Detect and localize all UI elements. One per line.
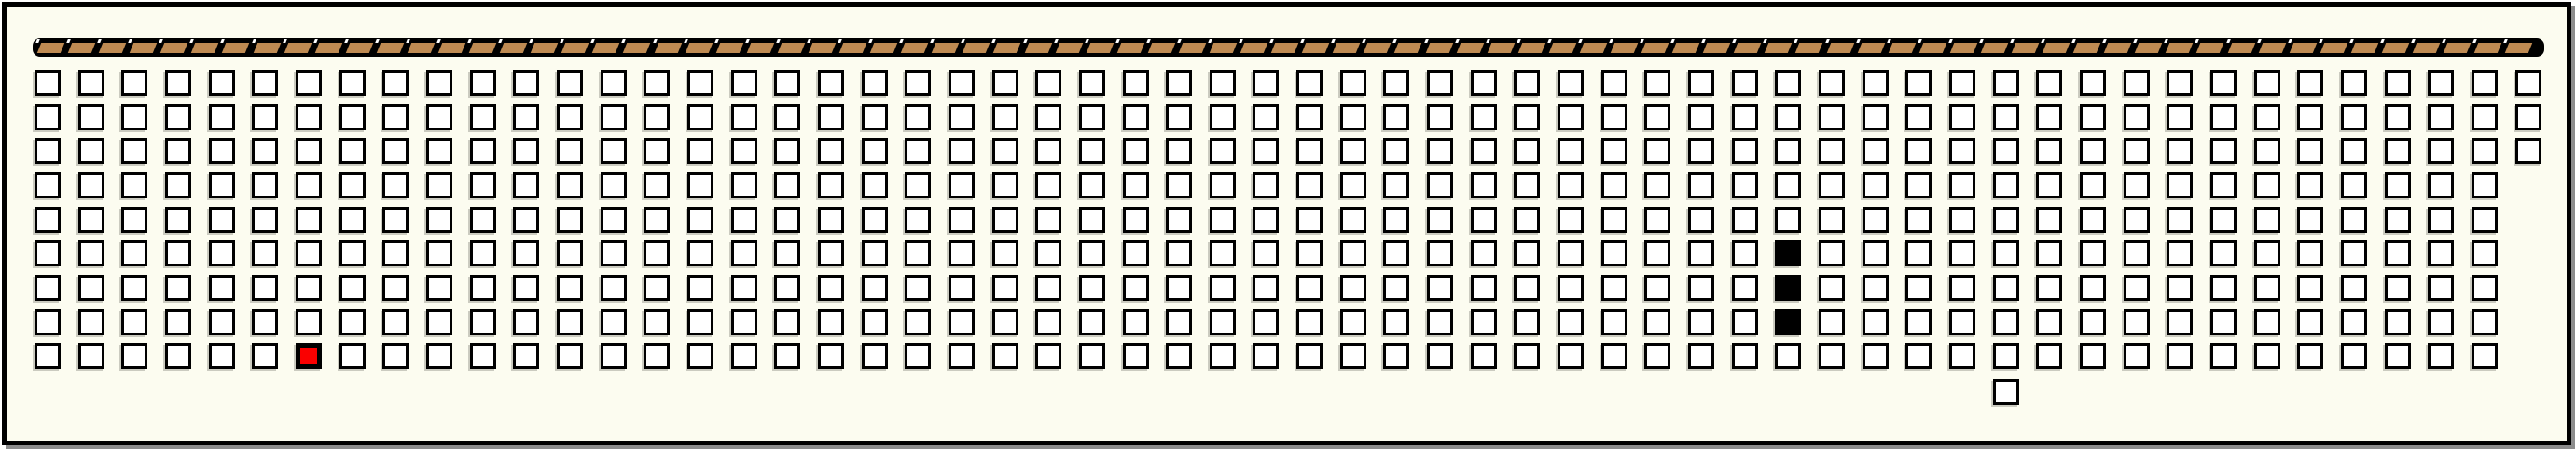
grid-cell[interactable] <box>1471 275 1497 301</box>
grid-cell[interactable] <box>2036 172 2062 198</box>
grid-cell[interactable] <box>1166 104 1192 130</box>
grid-cell[interactable] <box>1688 309 1714 335</box>
grid-cell[interactable] <box>1166 309 1192 335</box>
grid-cell[interactable] <box>687 275 713 301</box>
grid-cell[interactable] <box>2341 138 2367 164</box>
grid-cell[interactable] <box>1427 240 1453 266</box>
grid-cell[interactable] <box>1210 172 1236 198</box>
grid-cell[interactable] <box>35 207 61 233</box>
grid-cell[interactable] <box>2124 70 2150 96</box>
grid-cell[interactable] <box>2297 138 2323 164</box>
grid-cell[interactable] <box>1863 138 1889 164</box>
grid-cell[interactable] <box>818 138 844 164</box>
black-cell[interactable] <box>1775 240 1801 266</box>
grid-cell[interactable] <box>687 70 713 96</box>
grid-cell[interactable] <box>1819 207 1845 233</box>
grid-cell[interactable] <box>78 70 104 96</box>
grid-cell[interactable] <box>1601 240 1627 266</box>
grid-cell[interactable] <box>1123 275 1149 301</box>
grid-cell[interactable] <box>949 240 975 266</box>
grid-cell[interactable] <box>1471 138 1497 164</box>
grid-cell[interactable] <box>1732 70 1758 96</box>
grid-cell[interactable] <box>1253 207 1279 233</box>
grid-cell[interactable] <box>78 104 104 130</box>
grid-cell[interactable] <box>1688 172 1714 198</box>
grid-cell[interactable] <box>1471 104 1497 130</box>
grid-cell[interactable] <box>1993 343 2019 369</box>
grid-cell[interactable] <box>601 172 627 198</box>
grid-cell[interactable] <box>1035 309 1061 335</box>
grid-cell[interactable] <box>1644 309 1670 335</box>
grid-cell[interactable] <box>78 275 104 301</box>
grid-cell[interactable] <box>2080 104 2106 130</box>
grid-cell[interactable] <box>2080 70 2106 96</box>
grid-cell[interactable] <box>1296 138 1323 164</box>
grid-cell[interactable] <box>1383 104 1409 130</box>
grid-cell[interactable] <box>1296 104 1323 130</box>
grid-cell[interactable] <box>2080 138 2106 164</box>
grid-cell[interactable] <box>2254 104 2280 130</box>
grid-cell[interactable] <box>731 275 757 301</box>
grid-cell[interactable] <box>862 138 888 164</box>
grid-cell[interactable] <box>121 309 147 335</box>
grid-cell[interactable] <box>1296 172 1323 198</box>
grid-cell[interactable] <box>382 207 409 233</box>
grid-cell[interactable] <box>78 138 104 164</box>
grid-cell[interactable] <box>2297 275 2323 301</box>
grid-cell[interactable] <box>1035 275 1061 301</box>
grid-cell[interactable] <box>557 207 583 233</box>
grid-cell[interactable] <box>1949 240 1975 266</box>
grid-cell[interactable] <box>644 240 670 266</box>
grid-cell[interactable] <box>2167 240 2193 266</box>
grid-cell[interactable] <box>1210 207 1236 233</box>
grid-cell[interactable] <box>1993 104 2019 130</box>
grid-cell[interactable] <box>2428 275 2454 301</box>
grid-cell[interactable] <box>949 70 975 96</box>
grid-cell[interactable] <box>1601 104 1627 130</box>
grid-cell[interactable] <box>1427 70 1453 96</box>
grid-cell[interactable] <box>1905 207 1932 233</box>
grid-cell[interactable] <box>2385 343 2411 369</box>
grid-cell[interactable] <box>1644 172 1670 198</box>
grid-cell[interactable] <box>774 172 800 198</box>
grid-cell[interactable] <box>992 172 1018 198</box>
grid-cell[interactable] <box>1166 207 1192 233</box>
grid-cell[interactable] <box>2472 138 2498 164</box>
grid-cell[interactable] <box>949 207 975 233</box>
grid-cell[interactable] <box>2254 240 2280 266</box>
grid-cell[interactable] <box>1123 343 1149 369</box>
grid-cell[interactable] <box>1949 138 1975 164</box>
grid-cell[interactable] <box>862 275 888 301</box>
grid-cell[interactable] <box>513 70 539 96</box>
grid-cell[interactable] <box>2036 275 2062 301</box>
grid-cell[interactable] <box>35 138 61 164</box>
grid-cell[interactable] <box>252 275 278 301</box>
grid-cell[interactable] <box>470 104 496 130</box>
grid-cell[interactable] <box>165 138 191 164</box>
grid-cell[interactable] <box>2080 309 2106 335</box>
grid-cell[interactable] <box>1601 207 1627 233</box>
grid-cell[interactable] <box>557 343 583 369</box>
grid-cell[interactable] <box>1644 104 1670 130</box>
grid-cell[interactable] <box>209 309 235 335</box>
grid-cell[interactable] <box>2385 172 2411 198</box>
grid-cell[interactable] <box>252 70 278 96</box>
grid-cell[interactable] <box>644 138 670 164</box>
grid-cell[interactable] <box>339 104 366 130</box>
grid-cell[interactable] <box>339 172 366 198</box>
grid-cell[interactable] <box>1993 207 2019 233</box>
grid-cell[interactable] <box>818 207 844 233</box>
grid-cell[interactable] <box>818 309 844 335</box>
grid-cell[interactable] <box>1340 275 1366 301</box>
grid-cell[interactable] <box>731 207 757 233</box>
grid-cell[interactable] <box>2385 138 2411 164</box>
grid-cell[interactable] <box>601 343 627 369</box>
grid-cell[interactable] <box>165 309 191 335</box>
grid-cell[interactable] <box>1123 240 1149 266</box>
grid-cell[interactable] <box>905 172 931 198</box>
grid-cell[interactable] <box>1949 309 1975 335</box>
grid-cell[interactable] <box>1558 104 1584 130</box>
grid-cell[interactable] <box>2385 275 2411 301</box>
grid-cell[interactable] <box>2385 70 2411 96</box>
grid-cell[interactable] <box>339 207 366 233</box>
grid-cell[interactable] <box>209 104 235 130</box>
grid-cell[interactable] <box>2167 104 2193 130</box>
grid-cell[interactable] <box>470 309 496 335</box>
grid-cell[interactable] <box>818 172 844 198</box>
grid-cell[interactable] <box>1427 343 1453 369</box>
grid-cell[interactable] <box>339 309 366 335</box>
grid-cell[interactable] <box>1644 138 1670 164</box>
grid-cell[interactable] <box>513 309 539 335</box>
grid-cell[interactable] <box>2297 240 2323 266</box>
grid-cell[interactable] <box>2210 207 2237 233</box>
grid-cell[interactable] <box>35 70 61 96</box>
grid-cell[interactable] <box>1210 104 1236 130</box>
grid-cell[interactable] <box>1601 172 1627 198</box>
grid-cell[interactable] <box>1123 172 1149 198</box>
grid-cell[interactable] <box>339 138 366 164</box>
grid-cell[interactable] <box>2036 207 2062 233</box>
grid-cell[interactable] <box>2428 172 2454 198</box>
grid-cell[interactable] <box>1949 343 1975 369</box>
grid-cell[interactable] <box>2472 70 2498 96</box>
grid-cell[interactable] <box>992 207 1018 233</box>
grid-cell[interactable] <box>1644 240 1670 266</box>
grid-cell[interactable] <box>1558 207 1584 233</box>
grid-cell[interactable] <box>2254 309 2280 335</box>
grid-cell[interactable] <box>1688 70 1714 96</box>
grid-cell[interactable] <box>513 104 539 130</box>
grid-cell[interactable] <box>905 240 931 266</box>
grid-cell[interactable] <box>1558 309 1584 335</box>
grid-cell[interactable] <box>1819 343 1845 369</box>
grid-cell[interactable] <box>1123 104 1149 130</box>
grid-cell[interactable] <box>905 309 931 335</box>
grid-cell[interactable] <box>1732 343 1758 369</box>
grid-cell[interactable] <box>1949 275 1975 301</box>
grid-cell[interactable] <box>296 70 322 96</box>
grid-cell[interactable] <box>1688 275 1714 301</box>
grid-cell[interactable] <box>1427 207 1453 233</box>
grid-cell[interactable] <box>2124 275 2150 301</box>
grid-cell[interactable] <box>1775 207 1801 233</box>
grid-cell[interactable] <box>1471 309 1497 335</box>
grid-cell[interactable] <box>1601 343 1627 369</box>
grid-cell[interactable] <box>1732 138 1758 164</box>
grid-cell[interactable] <box>687 138 713 164</box>
grid-cell[interactable] <box>382 240 409 266</box>
grid-cell[interactable] <box>2515 104 2541 130</box>
grid-cell[interactable] <box>1035 343 1061 369</box>
grid-cell[interactable] <box>426 309 452 335</box>
grid-cell[interactable] <box>252 240 278 266</box>
grid-cell[interactable] <box>862 309 888 335</box>
grid-cell[interactable] <box>35 343 61 369</box>
grid-cell[interactable] <box>2167 207 2193 233</box>
grid-cell[interactable] <box>862 240 888 266</box>
grid-cell[interactable] <box>1210 70 1236 96</box>
grid-cell[interactable] <box>35 240 61 266</box>
grid-cell[interactable] <box>2036 138 2062 164</box>
grid-cell[interactable] <box>818 240 844 266</box>
grid-cell[interactable] <box>1471 240 1497 266</box>
grid-cell[interactable] <box>2254 138 2280 164</box>
grid-cell[interactable] <box>644 104 670 130</box>
grid-cell[interactable] <box>2297 343 2323 369</box>
grid-cell[interactable] <box>1819 138 1845 164</box>
grid-cell[interactable] <box>296 309 322 335</box>
grid-cell[interactable] <box>2254 275 2280 301</box>
grid-cell[interactable] <box>1340 70 1366 96</box>
grid-cell[interactable] <box>1471 70 1497 96</box>
grid-cell[interactable] <box>2297 70 2323 96</box>
grid-cell[interactable] <box>296 275 322 301</box>
grid-cell[interactable] <box>252 343 278 369</box>
grid-cell[interactable] <box>1732 240 1758 266</box>
grid-cell[interactable] <box>774 70 800 96</box>
grid-cell[interactable] <box>2341 70 2367 96</box>
grid-cell[interactable] <box>644 207 670 233</box>
grid-cell[interactable] <box>121 138 147 164</box>
grid-cell[interactable] <box>252 172 278 198</box>
grid-cell[interactable] <box>1383 309 1409 335</box>
grid-cell[interactable] <box>1079 275 1105 301</box>
grid-cell[interactable] <box>557 172 583 198</box>
grid-cell[interactable] <box>2167 309 2193 335</box>
grid-cell[interactable] <box>2080 240 2106 266</box>
grid-cell[interactable] <box>1775 343 1801 369</box>
grid-cell[interactable] <box>1905 104 1932 130</box>
grid-cell[interactable] <box>1688 104 1714 130</box>
grid-cell[interactable] <box>687 240 713 266</box>
grid-cell[interactable] <box>557 70 583 96</box>
grid-cell[interactable] <box>339 240 366 266</box>
grid-cell[interactable] <box>818 70 844 96</box>
grid-cell[interactable] <box>121 70 147 96</box>
grid-cell[interactable] <box>2428 343 2454 369</box>
grid-cell[interactable] <box>1471 343 1497 369</box>
grid-cell[interactable] <box>2472 343 2498 369</box>
grid-cell[interactable] <box>905 275 931 301</box>
grid-cell[interactable] <box>2124 343 2150 369</box>
grid-cell[interactable] <box>2341 207 2367 233</box>
grid-cell[interactable] <box>2472 207 2498 233</box>
grid-cell[interactable] <box>1514 172 1540 198</box>
grid-cell[interactable] <box>1253 104 1279 130</box>
grid-cell[interactable] <box>1166 275 1192 301</box>
grid-cell[interactable] <box>35 104 61 130</box>
grid-cell[interactable] <box>2341 343 2367 369</box>
grid-cell[interactable] <box>296 207 322 233</box>
grid-cell[interactable] <box>1514 275 1540 301</box>
grid-cell[interactable] <box>1035 138 1061 164</box>
grid-cell[interactable] <box>1079 240 1105 266</box>
grid-cell[interactable] <box>1340 172 1366 198</box>
grid-cell[interactable] <box>992 240 1018 266</box>
grid-cell[interactable] <box>470 138 496 164</box>
grid-cell[interactable] <box>731 138 757 164</box>
grid-cell[interactable] <box>1644 207 1670 233</box>
grid-cell[interactable] <box>1863 172 1889 198</box>
grid-cell[interactable] <box>1514 70 1540 96</box>
grid-cell[interactable] <box>513 343 539 369</box>
grid-cell[interactable] <box>731 104 757 130</box>
grid-cell[interactable] <box>601 138 627 164</box>
grid-cell[interactable] <box>1340 104 1366 130</box>
grid-cell[interactable] <box>992 275 1018 301</box>
grid-cell[interactable] <box>339 275 366 301</box>
grid-cell[interactable] <box>1383 138 1409 164</box>
grid-cell[interactable] <box>1079 309 1105 335</box>
grid-cell[interactable] <box>1253 343 1279 369</box>
grid-cell[interactable] <box>1166 138 1192 164</box>
grid-cell[interactable] <box>2472 240 2498 266</box>
grid-cell[interactable] <box>2080 343 2106 369</box>
grid-cell[interactable] <box>601 240 627 266</box>
grid-cell[interactable] <box>1863 343 1889 369</box>
grid-cell[interactable] <box>209 207 235 233</box>
grid-cell[interactable] <box>1819 104 1845 130</box>
grid-cell[interactable] <box>644 172 670 198</box>
grid-cell[interactable] <box>35 309 61 335</box>
grid-cell[interactable] <box>731 70 757 96</box>
grid-cell[interactable] <box>2341 275 2367 301</box>
grid-cell[interactable] <box>513 240 539 266</box>
grid-cell[interactable] <box>165 207 191 233</box>
grid-cell[interactable] <box>209 343 235 369</box>
grid-cell[interactable] <box>1383 207 1409 233</box>
grid-cell[interactable] <box>2385 309 2411 335</box>
grid-cell[interactable] <box>1905 275 1932 301</box>
grid-cell[interactable] <box>2080 172 2106 198</box>
grid-cell[interactable] <box>1732 275 1758 301</box>
grid-cell[interactable] <box>78 172 104 198</box>
grid-cell[interactable] <box>1775 104 1801 130</box>
grid-cell[interactable] <box>774 240 800 266</box>
grid-cell[interactable] <box>1688 207 1714 233</box>
grid-cell[interactable] <box>731 343 757 369</box>
grid-cell[interactable] <box>1514 309 1540 335</box>
grid-cell[interactable] <box>1819 172 1845 198</box>
grid-cell[interactable] <box>1514 343 1540 369</box>
grid-cell[interactable] <box>78 240 104 266</box>
grid-cell[interactable] <box>2385 240 2411 266</box>
grid-cell[interactable] <box>513 207 539 233</box>
grid-cell[interactable] <box>1471 207 1497 233</box>
grid-cell[interactable] <box>774 309 800 335</box>
grid-cell[interactable] <box>296 138 322 164</box>
grid-cell[interactable] <box>2297 309 2323 335</box>
grid-cell[interactable] <box>382 172 409 198</box>
grid-cell[interactable] <box>121 240 147 266</box>
grid-cell[interactable] <box>1644 70 1670 96</box>
black-cell[interactable] <box>1775 309 1801 335</box>
grid-cell[interactable] <box>1905 309 1932 335</box>
grid-cell[interactable] <box>2472 309 2498 335</box>
grid-cell[interactable] <box>2080 207 2106 233</box>
grid-cell[interactable] <box>1905 343 1932 369</box>
grid-cell[interactable] <box>513 275 539 301</box>
grid-cell[interactable] <box>818 104 844 130</box>
grid-cell[interactable] <box>949 138 975 164</box>
grid-cell[interactable] <box>1383 172 1409 198</box>
grid-cell[interactable] <box>1123 207 1149 233</box>
grid-cell[interactable] <box>1949 207 1975 233</box>
grid-cell[interactable] <box>1296 275 1323 301</box>
grid-cell[interactable] <box>1079 343 1105 369</box>
grid-cell[interactable] <box>1253 70 1279 96</box>
grid-cell[interactable] <box>949 309 975 335</box>
grid-cell[interactable] <box>2254 172 2280 198</box>
grid-cell[interactable] <box>2124 240 2150 266</box>
grid-cell[interactable] <box>1688 343 1714 369</box>
red-cell[interactable] <box>296 343 322 369</box>
grid-cell[interactable] <box>1558 240 1584 266</box>
grid-cell[interactable] <box>949 343 975 369</box>
grid-cell[interactable] <box>2167 343 2193 369</box>
grid-cell[interactable] <box>2472 275 2498 301</box>
grid-cell[interactable] <box>905 104 931 130</box>
grid-cell[interactable] <box>862 172 888 198</box>
grid-cell[interactable] <box>1863 207 1889 233</box>
grid-cell[interactable] <box>1035 70 1061 96</box>
grid-cell[interactable] <box>905 70 931 96</box>
grid-cell[interactable] <box>2428 104 2454 130</box>
grid-cell[interactable] <box>1427 104 1453 130</box>
grid-cell[interactable] <box>382 138 409 164</box>
grid-cell[interactable] <box>601 275 627 301</box>
grid-cell[interactable] <box>2341 172 2367 198</box>
grid-cell[interactable] <box>1558 70 1584 96</box>
grid-cell[interactable] <box>2385 104 2411 130</box>
grid-cell[interactable] <box>992 343 1018 369</box>
grid-cell[interactable] <box>1601 309 1627 335</box>
grid-cell[interactable] <box>1210 240 1236 266</box>
grid-cell[interactable] <box>382 309 409 335</box>
grid-cell[interactable] <box>2124 138 2150 164</box>
grid-cell[interactable] <box>78 309 104 335</box>
grid-cell[interactable] <box>35 172 61 198</box>
grid-cell[interactable] <box>121 207 147 233</box>
grid-cell[interactable] <box>78 343 104 369</box>
grid-cell[interactable] <box>949 104 975 130</box>
grid-cell[interactable] <box>339 70 366 96</box>
